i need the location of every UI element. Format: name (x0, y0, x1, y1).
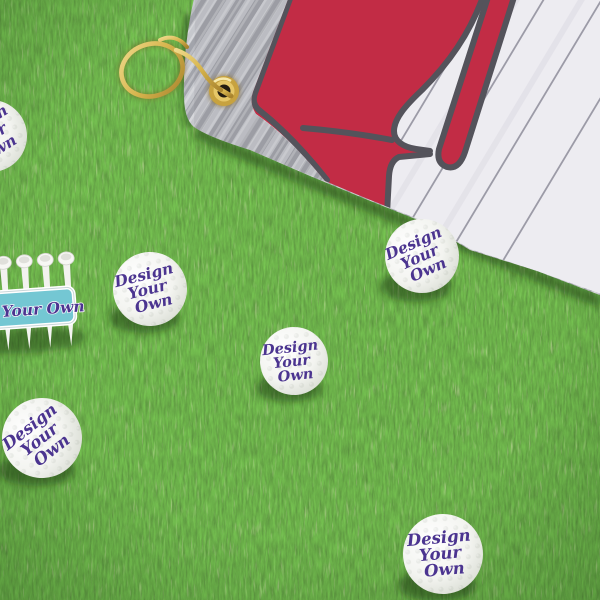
photo-stage: Your Own Design Your Own Design Your Own… (0, 0, 600, 600)
tee-holder-label: Your Own (0, 286, 86, 330)
ball-text-line: Own (423, 558, 465, 580)
towel-grommet (208, 75, 240, 107)
